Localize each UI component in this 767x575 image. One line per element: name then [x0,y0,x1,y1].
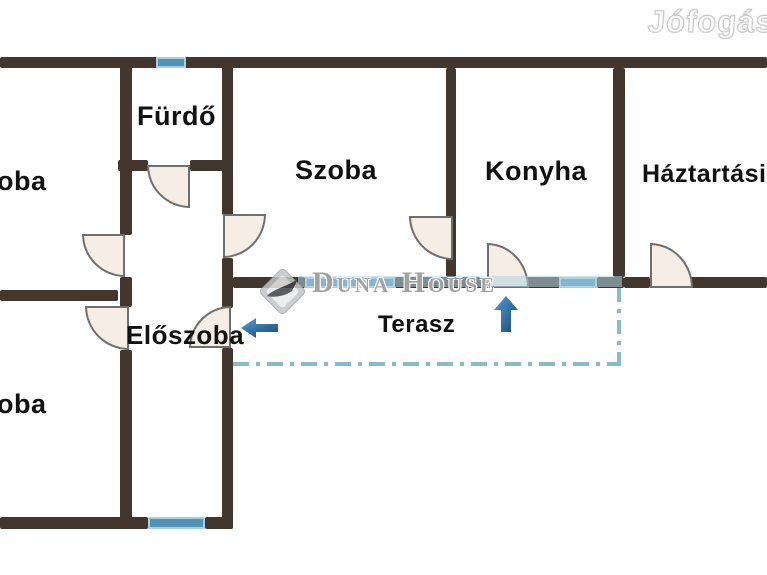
door-szoba-west [223,214,266,258]
wall-hall-east-c [222,348,233,529]
duna-house-watermark: Duna House [312,266,497,300]
wall-hall-west-a [120,57,132,235]
window-furdo [156,57,186,68]
door-szoba-konyha [409,216,453,260]
room-label-furdo: Fürdő [137,102,216,130]
room-label-terasz: Terasz [378,312,455,337]
window-eloszoba-bottom [148,517,205,529]
room-label-konyha: Konyha [485,157,587,185]
entrance-arrow-left-icon [241,317,279,339]
terrace-boundary-vertical [617,288,621,364]
room-label-top-left: oba [0,167,47,195]
floorplan: Jófogás Duna House oba F [0,0,767,575]
jofogas-watermark: Jófogás [647,4,767,40]
entrance-arrow-up-icon [493,296,519,333]
wall-hall-west-c [120,350,132,529]
room-label-szoba: Szoba [295,156,377,184]
wall-konyha-haztartasi-divider [613,68,625,277]
room-label-bottom-left: oba [0,390,47,418]
door-haztartasi [650,243,693,288]
room-label-haztartasi: Háztartási [642,161,767,187]
door-furdo [147,165,190,208]
wall-hall-east-b [222,258,233,308]
wall-haztartasi-bottom-a [624,277,650,288]
terrace-boundary-horizontal [233,362,621,366]
wall-top [0,57,767,68]
wall-haztartasi-bottom-b [688,277,767,288]
door-room-bottom-left [85,306,129,350]
duna-house-logo-icon [253,262,312,321]
wall-hall-west-b [120,277,132,307]
wall-hall-east-a [222,57,233,215]
room-label-eloszoba: Előszoba [126,322,244,349]
door-room-top-left [82,234,125,277]
wall-left-rooms-divider [0,290,118,301]
